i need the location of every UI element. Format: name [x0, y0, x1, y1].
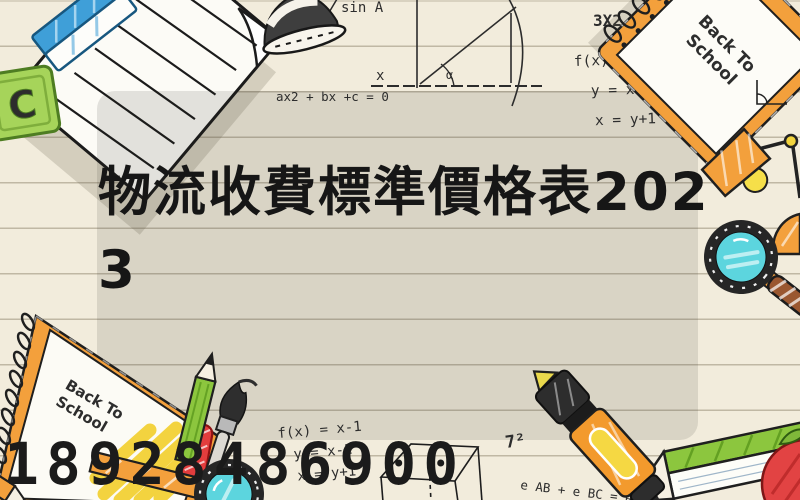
- sin-label: sin A: [341, 0, 384, 16]
- poster-title-line1: 物流收費標準價格表202: [98, 154, 718, 232]
- quadratic-label: ax2 + bx +c = 0: [276, 89, 389, 104]
- letter-block-icon: C: [0, 65, 61, 141]
- axis-x-label: x: [376, 68, 384, 84]
- axis-diagram: x α: [371, 0, 542, 106]
- poster-canvas: C sin A x α ax2 + bx +c = 0 3X2 f(x) = x…: [0, 0, 800, 500]
- phone-number: 18928486900: [4, 430, 465, 498]
- poster-title: 物流收費標準價格表202 3: [98, 154, 718, 310]
- seven-squared-label: 7²: [504, 430, 527, 453]
- eraser-icon: [31, 0, 137, 71]
- equation-line: x = y+1: [595, 111, 657, 129]
- angle-label: α: [446, 68, 453, 82]
- poster-title-line2: 3: [98, 232, 718, 310]
- highlighter-icon: [521, 354, 670, 500]
